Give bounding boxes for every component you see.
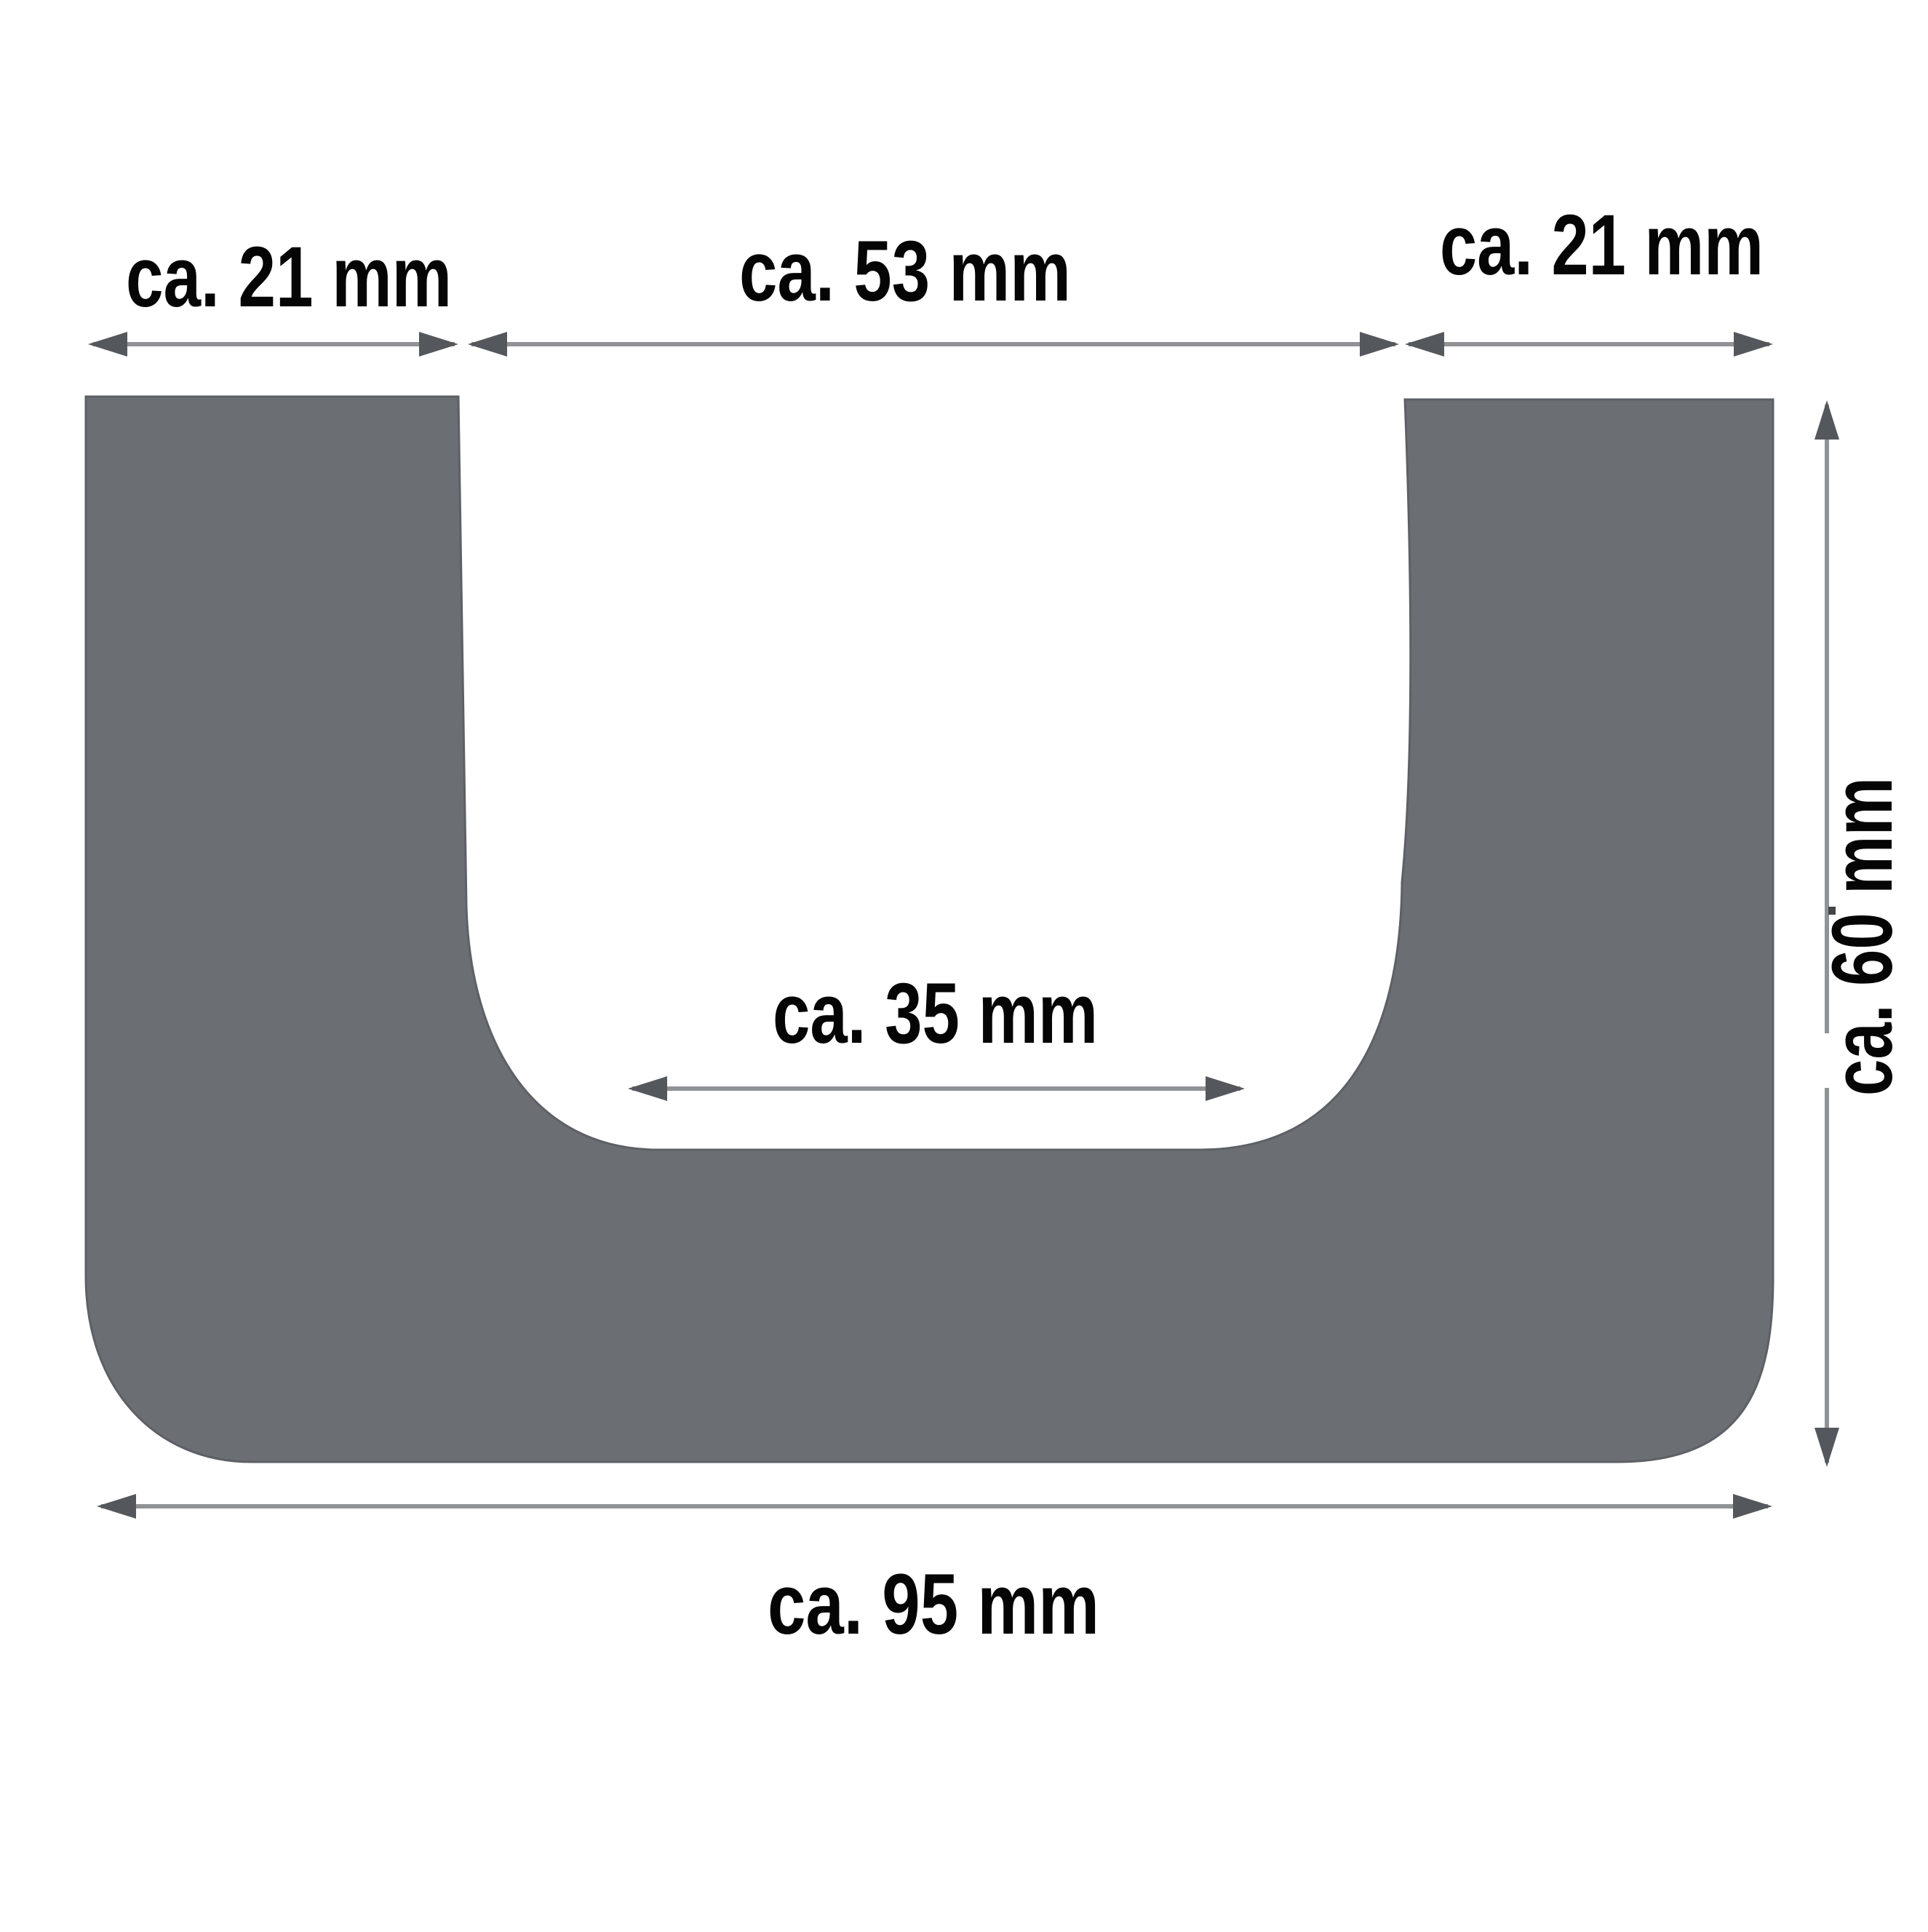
svg-text:ca. 95 mm: ca. 95 mm [768,1557,1099,1653]
svg-text:ca. 53 mm: ca. 53 mm [739,223,1071,319]
svg-text:ca. 21 mm: ca. 21 mm [126,229,452,325]
svg-text:ca. 60 mm: ca. 60 mm [1815,777,1911,1096]
svg-text:ca. 35 mm: ca. 35 mm [773,966,1098,1062]
svg-text:ca. 21 mm: ca. 21 mm [1440,197,1764,293]
